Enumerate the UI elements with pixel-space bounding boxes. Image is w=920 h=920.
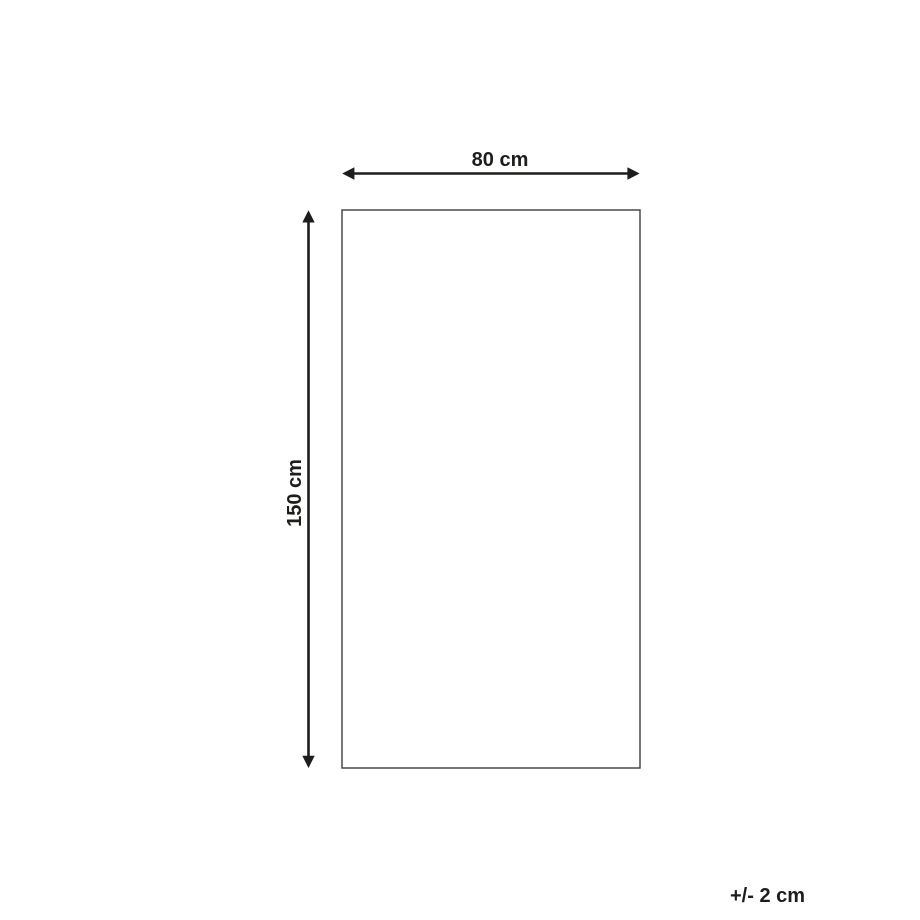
svg-text:80 cm: 80 cm bbox=[472, 149, 529, 171]
svg-text:150 cm: 150 cm bbox=[284, 459, 306, 527]
svg-text:+/- 2 cm: +/- 2 cm bbox=[730, 885, 805, 907]
